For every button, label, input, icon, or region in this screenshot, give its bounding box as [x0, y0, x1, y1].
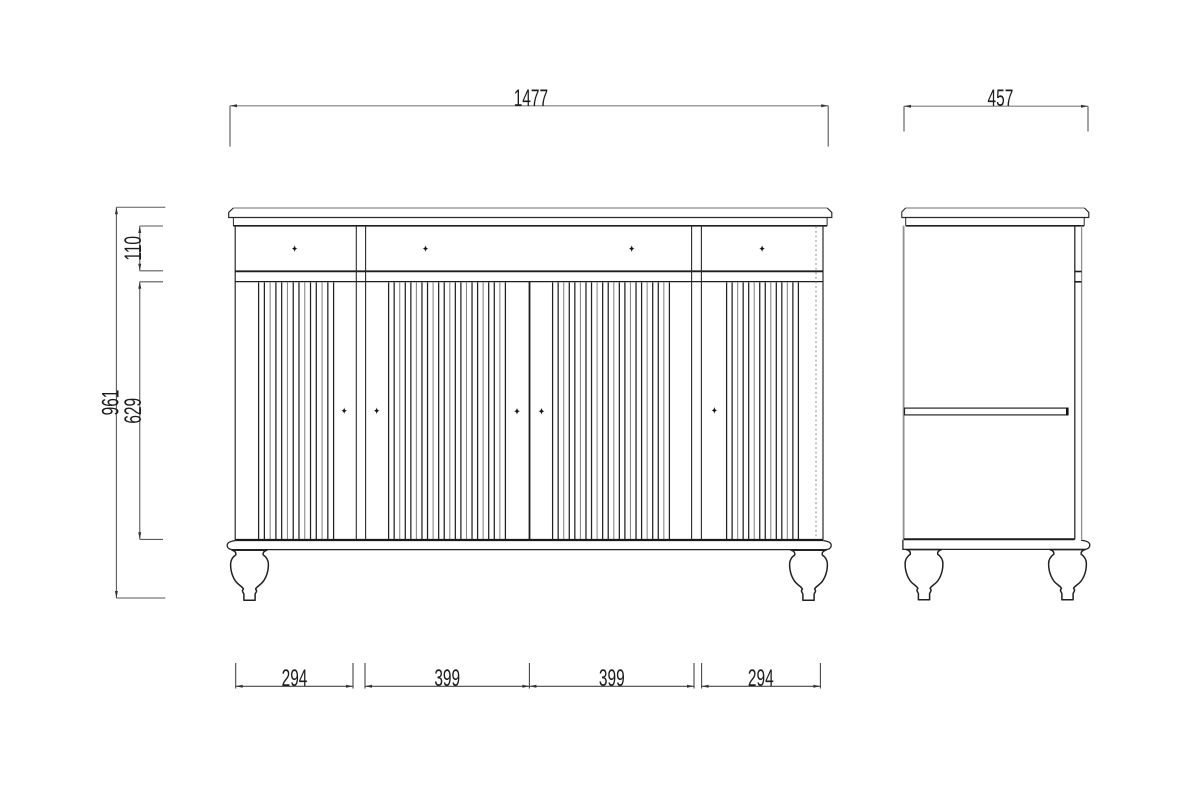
svg-text:457: 457: [988, 86, 1014, 112]
svg-text:294: 294: [748, 666, 774, 692]
svg-text:629: 629: [121, 398, 147, 424]
svg-text:1477: 1477: [514, 86, 548, 112]
svg-text:110: 110: [121, 236, 147, 261]
svg-text:294: 294: [282, 666, 308, 692]
svg-text:399: 399: [434, 666, 460, 692]
svg-text:399: 399: [599, 666, 625, 692]
